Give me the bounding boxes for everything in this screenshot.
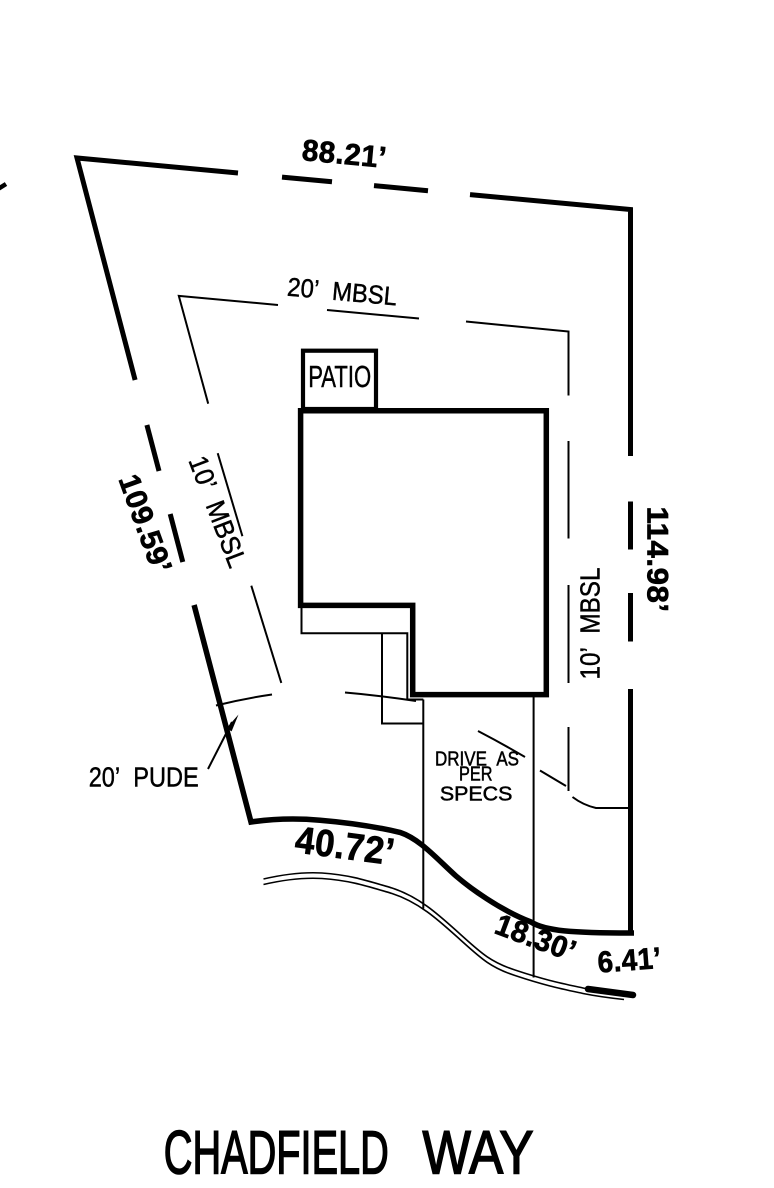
svg-text:114.98’: 114.98’: [641, 507, 674, 613]
svg-text:20’ PUDE: 20’ PUDE: [89, 762, 199, 793]
svg-text:SPECS: SPECS: [440, 783, 513, 805]
svg-text:WAY: WAY: [423, 1119, 534, 1187]
svg-text:PATIO: PATIO: [308, 359, 371, 394]
svg-text:10’ MBSL: 10’ MBSL: [575, 568, 606, 680]
svg-text:CHADFIELD: CHADFIELD: [164, 1119, 389, 1187]
svg-text:6.41’: 6.41’: [596, 942, 662, 980]
